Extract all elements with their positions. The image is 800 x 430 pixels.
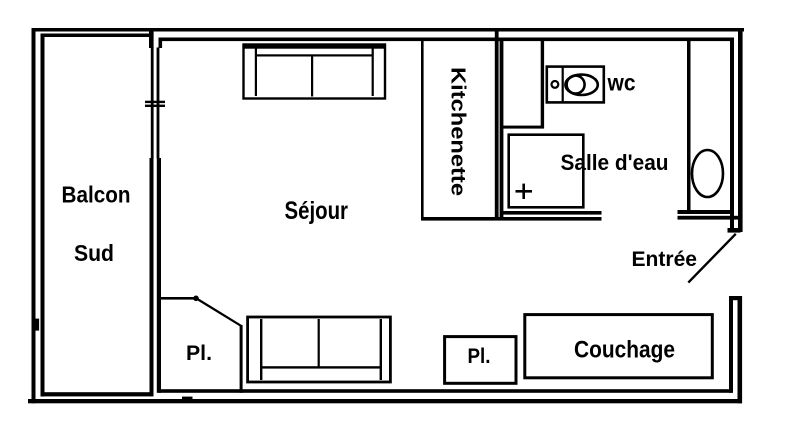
svg-text:Salle d'eau: Salle d'eau xyxy=(561,150,669,175)
svg-text:Sud: Sud xyxy=(74,240,114,266)
svg-text:wc: wc xyxy=(607,69,636,95)
svg-text:Pl.: Pl. xyxy=(186,342,212,365)
svg-text:Couchage: Couchage xyxy=(574,336,675,363)
svg-text:Séjour: Séjour xyxy=(285,197,349,225)
svg-text:Pl.: Pl. xyxy=(468,344,491,368)
svg-text:Entrée: Entrée xyxy=(632,247,698,271)
svg-text:Kitchenette: Kitchenette xyxy=(447,67,470,196)
svg-text:Balcon: Balcon xyxy=(62,181,131,207)
